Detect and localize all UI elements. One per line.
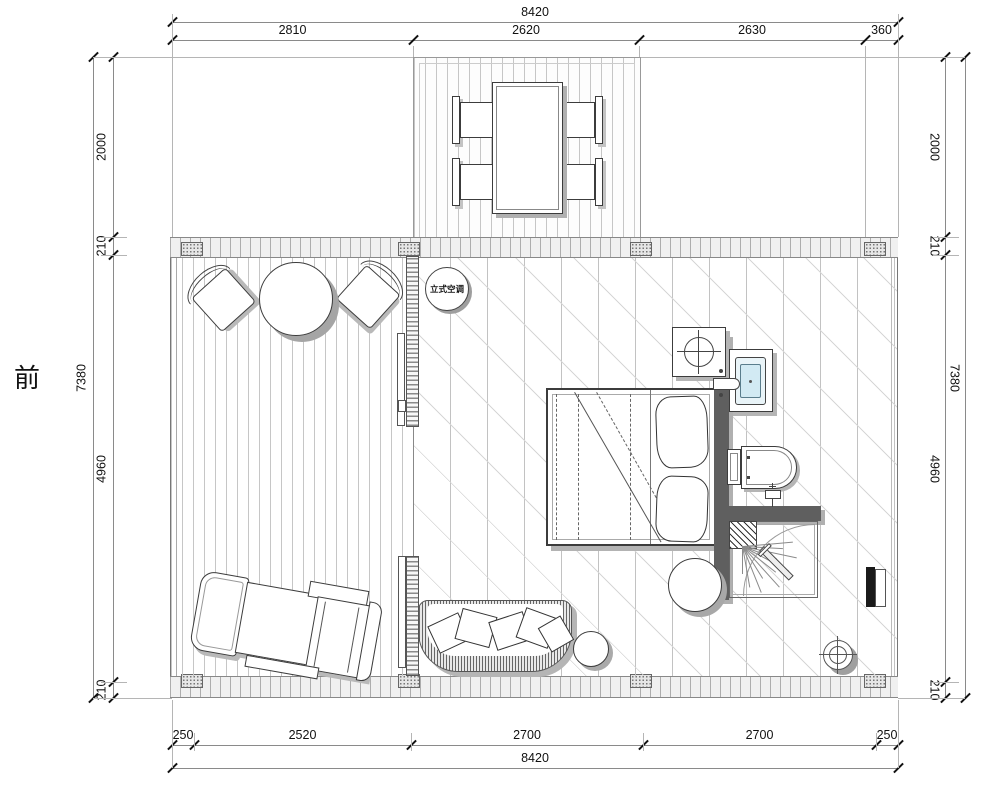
dim-label-2000: 2000 xyxy=(96,133,109,161)
dim-label-2620: 2620 xyxy=(512,24,540,37)
door-handle-dot xyxy=(719,369,723,373)
dim-label-2700: 2700 xyxy=(746,729,774,742)
extension-line xyxy=(898,698,965,699)
bottom-edge-strip xyxy=(170,676,898,698)
bed-pillow xyxy=(655,475,709,543)
dim-label-7380: 7380 xyxy=(948,364,961,392)
dim-label-360: 360 xyxy=(871,24,892,37)
footing-pad xyxy=(630,242,652,256)
wall-heater-light xyxy=(875,569,886,607)
faucet-stem xyxy=(772,499,773,507)
spray-line xyxy=(742,546,743,574)
toilet-hinge-dot xyxy=(747,476,750,479)
faucet xyxy=(765,490,781,499)
extension-line xyxy=(898,14,899,237)
interior-right-edge xyxy=(891,258,892,676)
dining-chair-seat xyxy=(460,164,496,200)
ac-label-text: 立式空调 xyxy=(430,283,464,295)
sofa-side-table xyxy=(573,631,609,667)
sliding-door-leaf-lower xyxy=(398,556,406,668)
extension-line xyxy=(865,46,866,237)
dim-label-2000: 2000 xyxy=(928,133,941,161)
porch-inner-edge xyxy=(176,258,177,676)
top-edge-strip xyxy=(170,237,898,258)
round-stool xyxy=(668,558,722,612)
extension-line xyxy=(93,57,413,58)
dining-chair xyxy=(452,158,460,206)
extension-line xyxy=(933,682,959,683)
extension-line xyxy=(172,14,173,237)
dimension-line xyxy=(172,40,898,41)
dimension-line xyxy=(172,768,898,769)
extension-line xyxy=(172,700,173,768)
toilet-bowl-inner xyxy=(746,450,792,485)
extension-line xyxy=(933,237,959,238)
water-heater-cross-v xyxy=(698,330,699,374)
extension-line xyxy=(643,733,644,751)
floor-drain-cross-v xyxy=(837,636,838,674)
dining-chair xyxy=(595,96,603,144)
dimension-line xyxy=(965,57,966,698)
door-handle-dot xyxy=(719,393,723,397)
extension-line xyxy=(641,57,965,58)
toilet-tank-inner xyxy=(730,453,738,481)
ac-label-bubble: 立式空调 xyxy=(425,267,469,311)
dim-label-4960: 4960 xyxy=(928,455,941,483)
faucet-handle-stem xyxy=(772,483,773,488)
extension-line xyxy=(93,698,172,699)
footing-pad xyxy=(181,674,203,688)
dim-label-2700: 2700 xyxy=(513,729,541,742)
extension-line xyxy=(898,700,899,768)
dining-chair xyxy=(452,96,460,144)
extension-line xyxy=(194,733,195,751)
porch-round-table xyxy=(259,262,333,336)
door-handle xyxy=(713,378,740,390)
dining-chair-seat xyxy=(460,102,496,138)
extension-line xyxy=(101,255,127,256)
toilet-hinge-dot xyxy=(747,456,750,459)
dimension-line xyxy=(945,57,946,698)
floor-plan: 前 84202810262026303602502520270027002508… xyxy=(0,0,1000,799)
dim-label-4960: 4960 xyxy=(96,455,109,483)
dim-label-8420: 8420 xyxy=(521,752,549,765)
dimension-line xyxy=(172,745,898,746)
footing-pad xyxy=(864,242,886,256)
dim-label-7380: 7380 xyxy=(76,364,89,392)
bed-pillow xyxy=(655,395,709,469)
dim-label-210: 210 xyxy=(928,236,941,257)
extension-line xyxy=(411,733,412,751)
door-end-post xyxy=(398,400,406,412)
extension-line xyxy=(101,237,127,238)
bed-fold-dashed xyxy=(556,394,557,540)
footing-pad xyxy=(630,674,652,688)
footing-pad xyxy=(398,242,420,256)
dining-chair-seat xyxy=(559,102,595,138)
dim-label-8420: 8420 xyxy=(521,6,549,19)
dim-label-2520: 2520 xyxy=(289,729,317,742)
extension-line xyxy=(101,682,127,683)
dim-label-210: 210 xyxy=(96,236,109,257)
sliding-door-leaf-upper xyxy=(397,333,405,426)
dim-label-250: 250 xyxy=(877,729,898,742)
dim-label-2810: 2810 xyxy=(279,24,307,37)
footing-pad xyxy=(398,674,420,688)
dimension-line xyxy=(113,57,114,698)
wall-heater-dark xyxy=(866,567,875,607)
dining-chair-seat xyxy=(559,164,595,200)
dim-label-2630: 2630 xyxy=(738,24,766,37)
extension-line xyxy=(933,255,959,256)
bed-fold-dashed xyxy=(578,394,579,540)
bed-pillow-divider xyxy=(650,390,651,544)
footing-pad xyxy=(864,674,886,688)
dim-label-250: 250 xyxy=(173,729,194,742)
bathroom-wall-horizontal xyxy=(729,506,821,521)
sink-drain-dot xyxy=(749,380,752,383)
partition-wall-upper xyxy=(406,256,419,427)
footing-pad xyxy=(181,242,203,256)
bed-fold-dashed xyxy=(630,394,631,540)
dining-table-inner-edge xyxy=(496,86,559,210)
dining-chair xyxy=(595,158,603,206)
extension-line xyxy=(876,733,877,751)
